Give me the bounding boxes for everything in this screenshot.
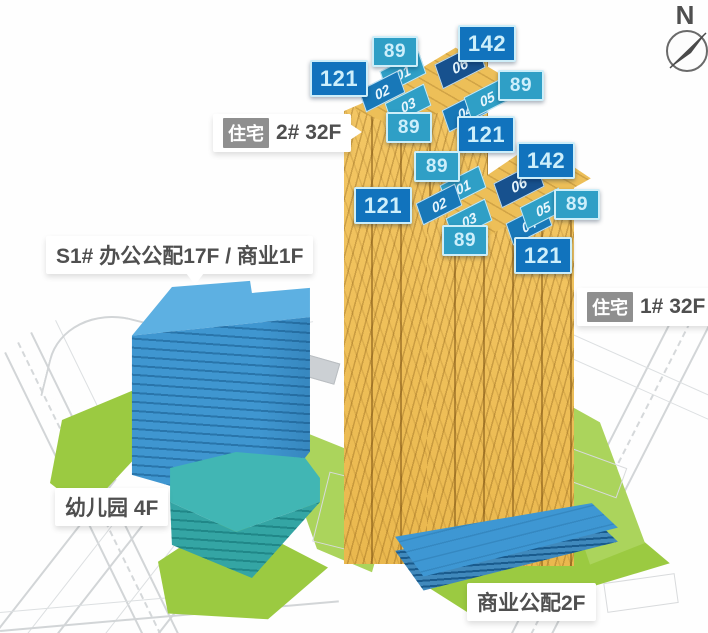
- label-pointer: [186, 273, 204, 285]
- residential-tag: 住宅: [587, 292, 633, 322]
- area-badge-89: 89: [372, 36, 418, 67]
- compass-north-label: N: [660, 2, 708, 28]
- label-podium: 商业公配2F: [467, 583, 596, 621]
- label-tower2: 住宅 2# 32F: [213, 114, 351, 152]
- area-badge-89: 89: [386, 112, 432, 143]
- label-kindergarten: 幼儿园 4F: [55, 488, 168, 526]
- area-badge-121: 121: [354, 187, 412, 224]
- label-podium-text: 商业公配2F: [477, 587, 586, 617]
- area-badge-89: 89: [414, 151, 460, 182]
- road-line: [566, 331, 708, 413]
- kindergarten-building: [166, 450, 322, 580]
- label-tower2-text: 2# 32F: [276, 121, 341, 145]
- label-office: S1# 办公公配17F / 商业1F: [46, 236, 313, 274]
- label-tower1-text: 1# 32F: [640, 295, 705, 319]
- compass-needle-icon: [662, 28, 708, 74]
- area-badge-89: 89: [498, 70, 544, 101]
- area-badge-89: 89: [442, 225, 488, 256]
- label-kindergarten-text: 幼儿园 4F: [65, 492, 158, 522]
- road-line: [50, 512, 153, 633]
- area-badge-121: 121: [310, 60, 368, 97]
- residential-tag: 住宅: [223, 118, 269, 148]
- area-badge-89: 89: [554, 189, 600, 220]
- compass-icon: N: [660, 2, 708, 74]
- label-pointer: [350, 124, 362, 140]
- area-badge-121: 121: [457, 116, 515, 153]
- area-badge-142: 142: [517, 142, 575, 179]
- label-office-text: S1# 办公公配17F / 商业1F: [56, 240, 303, 270]
- site-plan: 01 02 03 04 05 06 01 02 03 04 05 06 89 1…: [0, 0, 708, 633]
- area-badge-142: 142: [458, 25, 516, 62]
- label-tower1: 住宅 1# 32F: [577, 288, 708, 326]
- area-badge-121: 121: [514, 237, 572, 274]
